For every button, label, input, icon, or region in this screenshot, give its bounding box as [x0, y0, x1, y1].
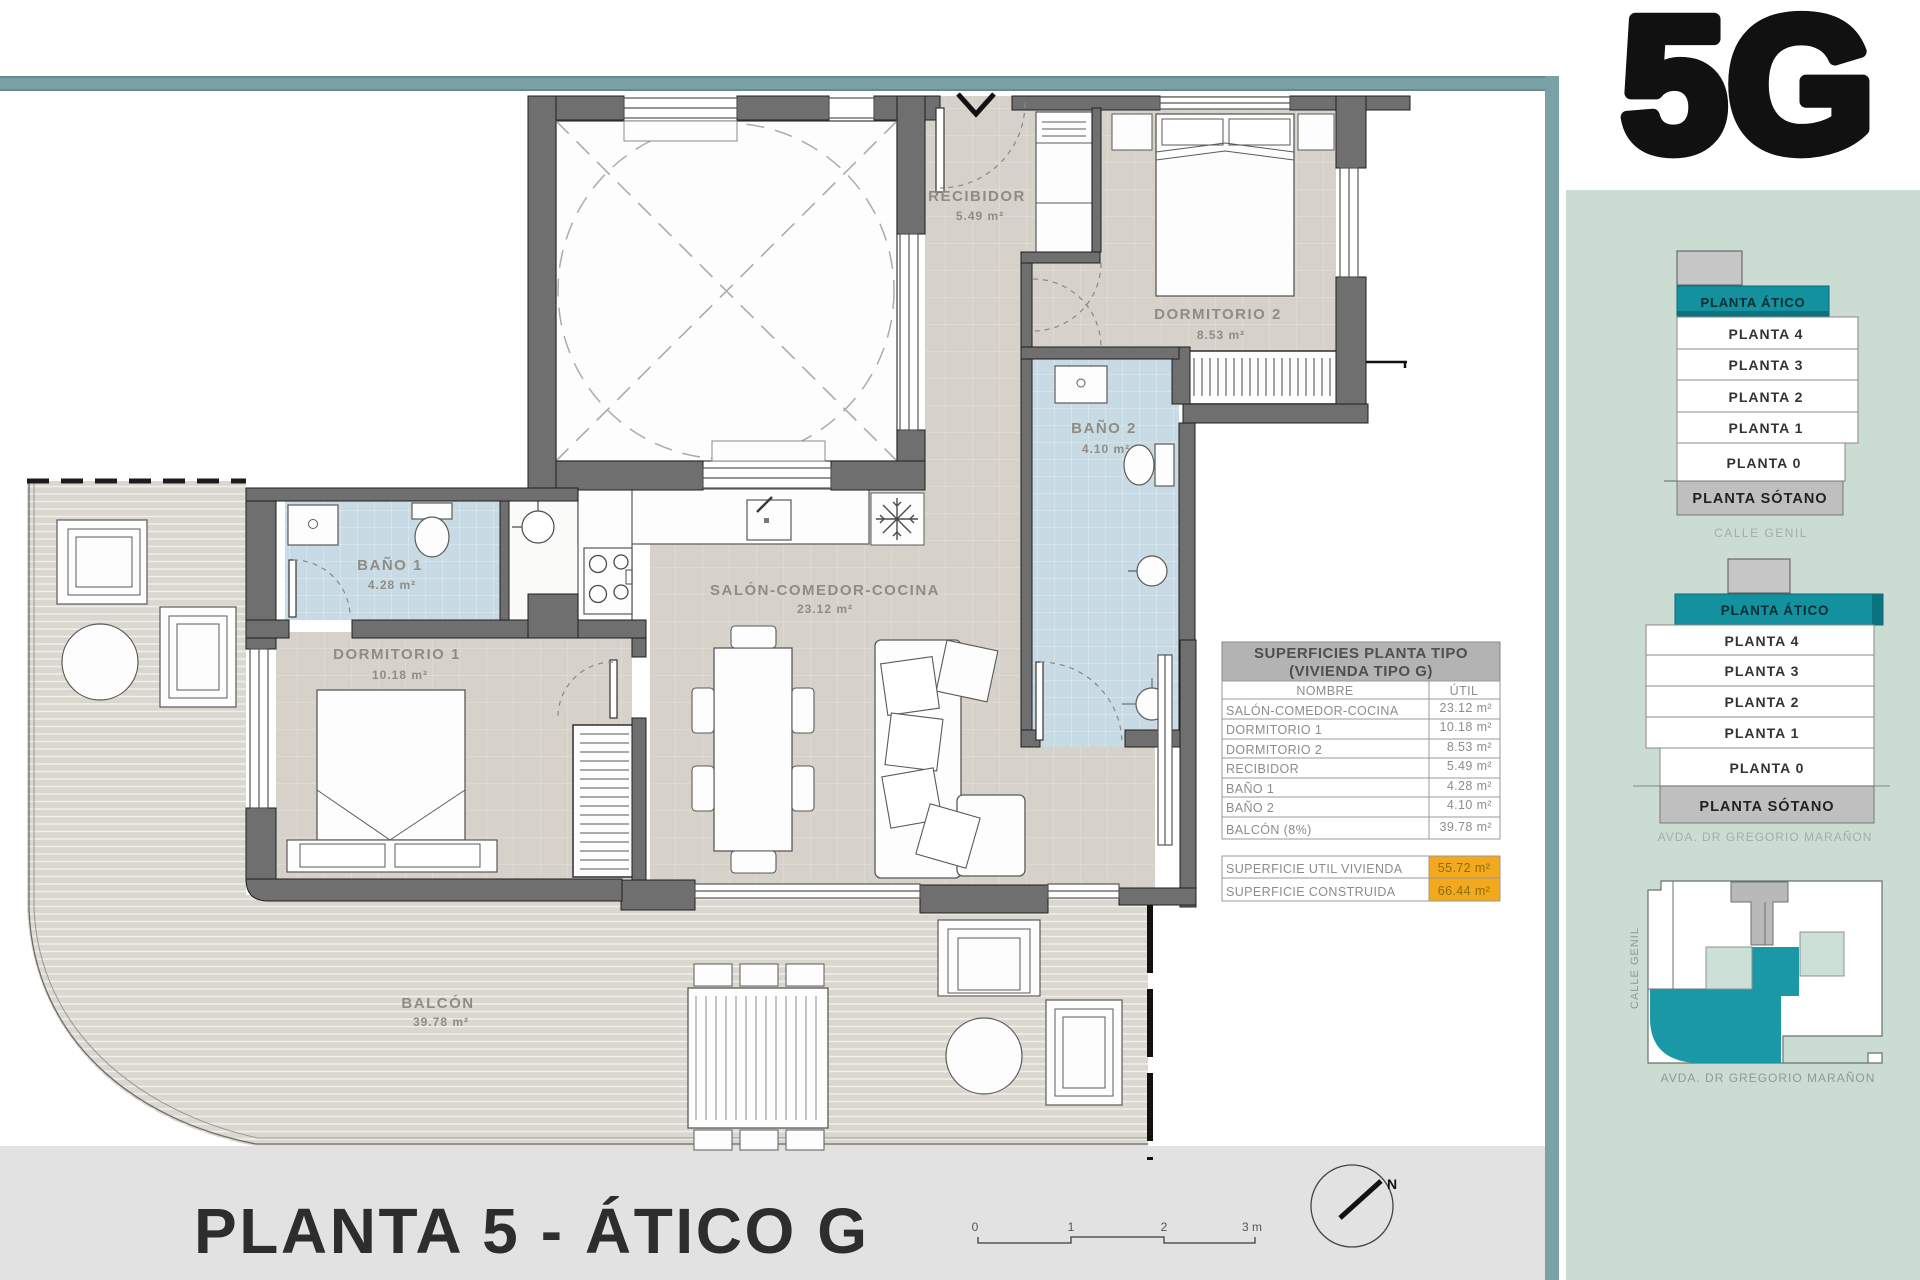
svg-text:SALÓN-COMEDOR-COCINA: SALÓN-COMEDOR-COCINA — [1226, 703, 1399, 718]
svg-text:PLANTA SÓTANO: PLANTA SÓTANO — [1699, 797, 1834, 815]
svg-text:4.10 m²: 4.10 m² — [1082, 442, 1130, 456]
svg-text:8.53 m²: 8.53 m² — [1197, 328, 1245, 342]
svg-text:5G: 5G — [1621, 0, 1874, 191]
svg-text:NOMBRE: NOMBRE — [1296, 684, 1353, 698]
svg-text:DORMITORIO 1: DORMITORIO 1 — [333, 646, 461, 663]
svg-text:1: 1 — [1068, 1220, 1075, 1234]
svg-text:CALLE GENIL: CALLE GENIL — [1714, 526, 1808, 540]
svg-text:BAÑO 1: BAÑO 1 — [357, 556, 423, 574]
svg-text:CALLE GENIL: CALLE GENIL — [1629, 927, 1641, 1009]
svg-text:PLANTA 1: PLANTA 1 — [1725, 725, 1800, 741]
svg-text:PLANTA 3: PLANTA 3 — [1729, 357, 1804, 373]
svg-text:66.44 m²: 66.44 m² — [1438, 884, 1491, 898]
svg-text:DORMITORIO 2: DORMITORIO 2 — [1226, 743, 1322, 757]
svg-text:N: N — [1387, 1176, 1397, 1192]
svg-text:BAÑO 1: BAÑO 1 — [1226, 782, 1274, 796]
svg-text:4.28 m²: 4.28 m² — [368, 578, 416, 592]
svg-text:5.49 m²: 5.49 m² — [1447, 759, 1492, 773]
svg-text:AVDA. DR GREGORIO MARAÑON: AVDA. DR GREGORIO MARAÑON — [1661, 1071, 1876, 1085]
svg-text:39.78 m²: 39.78 m² — [413, 1015, 469, 1029]
svg-text:DORMITORIO 2: DORMITORIO 2 — [1154, 306, 1282, 323]
svg-text:SUPERFICIE UTIL VIVIENDA: SUPERFICIE UTIL VIVIENDA — [1226, 862, 1403, 876]
svg-text:23.12 m²: 23.12 m² — [797, 602, 853, 616]
svg-text:4.10 m²: 4.10 m² — [1447, 798, 1492, 812]
svg-text:0: 0 — [972, 1220, 979, 1234]
svg-text:2: 2 — [1161, 1220, 1168, 1234]
svg-text:55.72 m²: 55.72 m² — [1438, 861, 1491, 875]
svg-text:8.53 m²: 8.53 m² — [1447, 740, 1492, 754]
svg-text:PLANTA 2: PLANTA 2 — [1729, 389, 1804, 405]
svg-text:10.18 m²: 10.18 m² — [1439, 720, 1492, 734]
svg-text:BALCÓN (8%): BALCÓN (8%) — [1226, 822, 1312, 837]
svg-text:39.78 m²: 39.78 m² — [1439, 820, 1492, 834]
svg-text:RECIBIDOR: RECIBIDOR — [928, 188, 1026, 205]
svg-text:10.18 m²: 10.18 m² — [372, 668, 428, 682]
svg-text:ÚTIL: ÚTIL — [1450, 683, 1479, 698]
svg-text:PLANTA 1: PLANTA 1 — [1729, 420, 1804, 436]
svg-text:PLANTA 4: PLANTA 4 — [1725, 633, 1800, 649]
svg-text:BAÑO 2: BAÑO 2 — [1226, 801, 1274, 815]
svg-text:PLANTA 0: PLANTA 0 — [1730, 760, 1805, 776]
svg-text:BALCÓN: BALCÓN — [401, 994, 474, 1012]
svg-text:SUPERFICIE CONSTRUIDA: SUPERFICIE CONSTRUIDA — [1226, 885, 1396, 899]
svg-text:23.12 m²: 23.12 m² — [1439, 701, 1492, 715]
svg-text:DORMITORIO 1: DORMITORIO 1 — [1226, 723, 1322, 737]
svg-text:BAÑO 2: BAÑO 2 — [1071, 419, 1137, 437]
svg-text:PLANTA 3: PLANTA 3 — [1725, 663, 1800, 679]
svg-text:5.49 m²: 5.49 m² — [956, 209, 1004, 223]
svg-text:PLANTA 5 - ÁTICO G: PLANTA 5 - ÁTICO G — [194, 1195, 869, 1267]
svg-text:SUPERFICIES PLANTA TIPO: SUPERFICIES PLANTA TIPO — [1254, 645, 1468, 662]
svg-text:PLANTA ÁTICO: PLANTA ÁTICO — [1721, 603, 1830, 618]
svg-text:AVDA. DR GREGORIO MARAÑON: AVDA. DR GREGORIO MARAÑON — [1658, 830, 1873, 844]
svg-text:PLANTA ÁTICO: PLANTA ÁTICO — [1701, 295, 1806, 310]
svg-text:(VIVIENDA TIPO G): (VIVIENDA TIPO G) — [1289, 663, 1433, 680]
svg-text:PLANTA 4: PLANTA 4 — [1729, 326, 1804, 342]
svg-text:PLANTA SÓTANO: PLANTA SÓTANO — [1692, 489, 1827, 507]
svg-text:4.28 m²: 4.28 m² — [1447, 779, 1492, 793]
svg-text:PLANTA 2: PLANTA 2 — [1725, 694, 1800, 710]
svg-text:SALÓN-COMEDOR-COCINA: SALÓN-COMEDOR-COCINA — [710, 581, 940, 599]
svg-text:PLANTA 0: PLANTA 0 — [1727, 455, 1802, 471]
svg-text:RECIBIDOR: RECIBIDOR — [1226, 762, 1299, 776]
svg-text:3 m: 3 m — [1242, 1220, 1262, 1234]
